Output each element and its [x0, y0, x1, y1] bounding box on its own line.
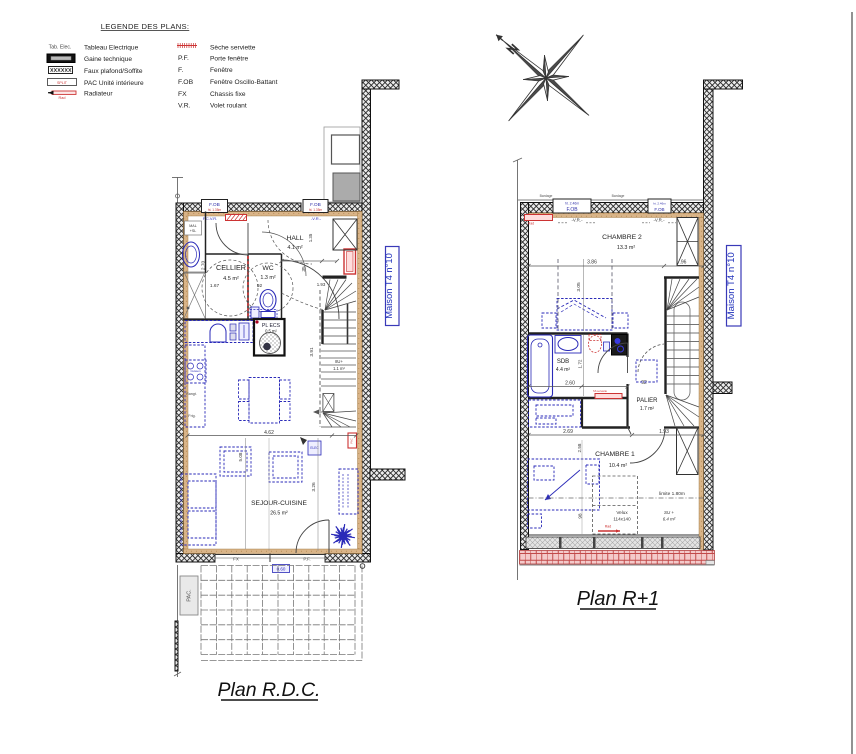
svg-text:Velux: Velux [616, 510, 628, 515]
svg-text:ht. 1.35m: ht. 1.35m [208, 208, 222, 212]
svg-text:2.70: 2.70 [201, 261, 207, 271]
svg-text:HALL: HALL [286, 235, 303, 242]
svg-text:92: 92 [641, 380, 647, 386]
svg-text:SDB: SDB [557, 359, 569, 365]
svg-text:PAC.: PAC. [187, 589, 193, 602]
svg-text:SS serviette: SS serviette [593, 389, 608, 393]
svg-text:3.05: 3.05 [576, 282, 582, 292]
svg-text:CHAMBRE 2: CHAMBRE 2 [602, 234, 642, 241]
svg-text:F.OB: F.OB [654, 207, 664, 212]
svg-text:Chassis fixe: Chassis fixe [210, 91, 246, 98]
svg-text:3.86: 3.86 [587, 260, 597, 266]
svg-text:1.67: 1.67 [210, 283, 220, 289]
svg-text:1.93: 1.93 [659, 429, 669, 435]
svg-text:1.3 m²: 1.3 m² [260, 275, 275, 281]
svg-text:F.OB: F.OB [178, 79, 194, 86]
svg-text:1.72: 1.72 [578, 359, 583, 368]
svg-text:2.69: 2.69 [563, 429, 573, 435]
svg-text:35: 35 [301, 266, 307, 272]
svg-text:Cuisson: Cuisson [190, 369, 201, 373]
svg-text:P.F.: P.F. [303, 557, 310, 562]
svg-text:1.35: 1.35 [308, 233, 313, 242]
svg-text:2.60: 2.60 [565, 381, 575, 387]
svg-text:FX: FX [178, 91, 187, 98]
svg-text:+SL: +SL [190, 229, 197, 233]
svg-text:V.R.: V.R. [178, 103, 191, 110]
svg-text:.96: .96 [680, 260, 687, 266]
svg-text:Fenêtre Oscillo-Battant: Fenêtre Oscillo-Battant [210, 79, 278, 86]
svg-text:CELLIER: CELLIER [216, 263, 246, 272]
svg-text:6.4 m²: 6.4 m² [663, 517, 676, 522]
svg-text:P.F.: P.F. [178, 55, 189, 62]
svg-text:PAC: PAC [350, 438, 354, 443]
svg-text:Bardage: Bardage [612, 194, 625, 198]
svg-text:4.4 m²: 4.4 m² [556, 367, 571, 373]
svg-text:ht. 2.46m: ht. 2.46m [565, 202, 579, 206]
svg-text:Plan R.D.C.: Plan R.D.C. [218, 679, 321, 701]
svg-text:-V.R.-: -V.R.- [653, 218, 665, 223]
svg-text:ht. 2.46m: ht. 2.46m [653, 202, 666, 206]
svg-text:Fenêtre: Fenêtre [210, 67, 233, 74]
svg-text:Tableau Electrique: Tableau Electrique [84, 45, 139, 52]
svg-text:4.62: 4.62 [264, 430, 274, 436]
svg-text:Tab. Elec.: Tab. Elec. [49, 45, 72, 51]
svg-text:-V.R.-: -V.R.- [571, 218, 583, 223]
svg-text:ht. 1.35m: ht. 1.35m [309, 208, 323, 212]
svg-text:92: 92 [257, 283, 263, 289]
svg-text:Frig.: Frig. [188, 414, 195, 418]
svg-text:1.1 m²: 1.1 m² [333, 366, 345, 371]
svg-text:4.1 m²: 4.1 m² [287, 245, 302, 251]
svg-text:FX: FX [233, 557, 239, 562]
svg-text:Radiateur: Radiateur [84, 91, 113, 98]
svg-text:Bardage: Bardage [540, 194, 553, 198]
svg-text:Maison T4 n°10: Maison T4 n°10 [383, 253, 394, 319]
svg-text:Rad: Rad [59, 96, 66, 100]
svg-text:SU +: SU + [664, 510, 674, 515]
svg-text:MAL: MAL [189, 224, 196, 228]
svg-text:Volet roulant: Volet roulant [210, 103, 247, 110]
svg-text:4.5 m²: 4.5 m² [223, 276, 239, 282]
svg-text:PAC Unité intérieure: PAC Unité intérieure [84, 80, 144, 87]
svg-text:limite 1.80m: limite 1.80m [659, 491, 685, 497]
svg-text:WC: WC [262, 265, 273, 272]
svg-text:Faux plafond/Soffite: Faux plafond/Soffite [84, 68, 143, 75]
svg-text:Porte fenêtre: Porte fenêtre [210, 56, 248, 63]
svg-text:2.58: 2.58 [577, 443, 582, 452]
svg-text:SPLIT: SPLIT [57, 81, 68, 85]
svg-text:PALIER: PALIER [637, 398, 659, 404]
svg-text:Rad: Rad [605, 525, 612, 529]
svg-text:LEGENDE DES PLANS:: LEGENDE DES PLANS: [101, 22, 190, 31]
svg-text:1.93: 1.93 [317, 282, 326, 287]
svg-text:1.7 m²: 1.7 m² [640, 406, 655, 412]
svg-text:Maison T4 n°10: Maison T4 n°10 [726, 252, 737, 319]
svg-text:CHAMBRE 1: CHAMBRE 1 [595, 451, 635, 458]
svg-text:10.4 m²: 10.4 m² [609, 463, 627, 469]
svg-text:-V.R.-: -V.R.- [311, 216, 322, 221]
svg-text:114x140: 114x140 [613, 517, 631, 522]
svg-text:Rangt.: Rangt. [186, 392, 197, 396]
svg-text:F.OB: F.OB [566, 207, 578, 213]
svg-text:26.5 m²: 26.5 m² [270, 511, 288, 517]
svg-text:Plan R+1: Plan R+1 [577, 588, 660, 610]
svg-text:Sèche serviette: Sèche serviette [210, 45, 256, 52]
svg-text:Gaine technique: Gaine technique [84, 56, 132, 63]
svg-text:13.3 m²: 13.3 m² [617, 245, 635, 251]
svg-text:3.26: 3.26 [311, 482, 317, 492]
svg-text:Rad: Rad [528, 222, 534, 226]
svg-text:F.: F. [178, 67, 183, 74]
svg-text:5.08: 5.08 [238, 452, 243, 461]
svg-text:3.91: 3.91 [309, 347, 315, 357]
svg-text:SEJOUR-CUISINE: SEJOUR-CUISINE [251, 500, 307, 507]
svg-text:8U+: 8U+ [335, 359, 343, 364]
